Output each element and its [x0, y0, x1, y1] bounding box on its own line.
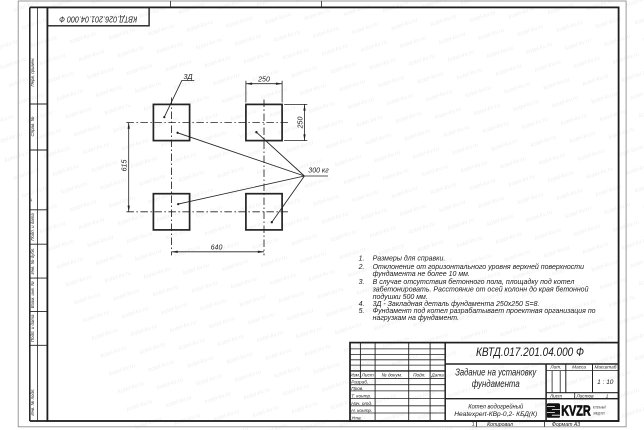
svg-text:№ докум.: № докум.: [382, 373, 403, 378]
svg-text:Котел водогрейный: Котел водогрейный: [468, 402, 523, 410]
svg-text:фундамента не более 10 мм.: фундамента не более 10 мм.: [373, 270, 470, 278]
svg-text:250: 250: [257, 77, 270, 84]
svg-text:Heatexpert-КВр-0,2- КБД(К): Heatexpert-КВр-0,2- КБД(К): [454, 411, 537, 418]
svg-text:Разраб.: Разраб.: [351, 380, 368, 385]
svg-text:Инв. № дубл.: Инв. № дубл.: [30, 247, 35, 274]
svg-text:3.: 3.: [359, 279, 365, 286]
svg-text:Утв.: Утв.: [351, 416, 362, 421]
svg-text:KVZR: KVZR: [561, 403, 591, 420]
svg-text:Подп. и дата: Подп. и дата: [30, 314, 35, 342]
svg-text:ЗАВОД РЭП: ЗАВОД РЭП: [593, 410, 605, 415]
svg-text:Т. контр.: Т. контр.: [351, 394, 371, 399]
svg-text:КВТД.026.201.04.000 Ф: КВТД.026.201.04.000 Ф: [59, 15, 137, 25]
svg-text:4.: 4.: [359, 301, 365, 308]
svg-text:Задание на установку: Задание на установку: [455, 368, 537, 379]
svg-text:Формат А3: Формат А3: [552, 422, 580, 428]
svg-text:2.: 2.: [358, 264, 365, 271]
svg-text:Лист: Лист: [549, 394, 562, 399]
svg-text:забетонировать. Расстояние от: забетонировать. Расстояние от осей колон…: [372, 285, 589, 293]
svg-text:Н. контр.: Н. контр.: [351, 408, 372, 413]
svg-text:1.: 1.: [359, 256, 365, 263]
svg-text:Подп.: Подп.: [413, 373, 425, 378]
svg-text:1 : 10: 1 : 10: [597, 379, 614, 386]
svg-text:В случае отсутствия бетонного: В случае отсутствия бетонного пола, площ…: [373, 278, 575, 286]
svg-text:300 кг: 300 кг: [308, 168, 329, 175]
svg-text:А: А: [29, 198, 32, 203]
svg-text:1: 1: [606, 394, 609, 399]
svg-text:250: 250: [297, 117, 304, 130]
svg-text:Лит.: Лит.: [549, 365, 561, 370]
svg-text:Подп. и дата: Подп. и дата: [30, 213, 35, 241]
svg-text:Размеры для справки.: Размеры для справки.: [373, 255, 446, 263]
svg-text:Перв. примен.: Перв. примен.: [30, 57, 35, 86]
svg-text:Пров.: Пров.: [351, 386, 363, 391]
svg-text:Нач. отд.: Нач. отд.: [351, 401, 372, 406]
svg-text:КОТЕЛЬНЫЙ: КОТЕЛЬНЫЙ: [593, 405, 606, 410]
svg-text:подушки 500 мм.: подушки 500 мм.: [373, 293, 428, 301]
svg-text:нагрузкам на фундамент.: нагрузкам на фундамент.: [373, 314, 459, 322]
svg-text:Изм.: Изм.: [350, 373, 360, 378]
svg-text:1: 1: [472, 422, 475, 428]
svg-text:3Д - Закладная деталь фундамен: 3Д - Закладная деталь фундамента 250х250…: [373, 300, 540, 308]
svg-text:Взам. инв. №: Взам. инв. №: [30, 281, 35, 308]
svg-text:Дата: Дата: [430, 373, 444, 378]
svg-text:КВТД.017.201.04.000 Ф: КВТД.017.201.04.000 Ф: [476, 345, 584, 359]
svg-text:Справ. №: Справ. №: [30, 116, 35, 136]
svg-text:640: 640: [211, 244, 223, 251]
svg-text:Лист: Лист: [361, 373, 374, 378]
svg-text:фундамента: фундамента: [472, 378, 520, 390]
svg-text:Листов: Листов: [575, 394, 594, 399]
svg-text:5.: 5.: [359, 308, 365, 315]
svg-text:Фундамент под котел разрабатыв: Фундамент под котел разрабатывает проект…: [373, 307, 596, 315]
svg-text:Отклонение от горизонтального: Отклонение от горизонтального уровня вер…: [373, 263, 585, 271]
svg-text:Инв. № подл.: Инв. № подл.: [30, 388, 35, 415]
svg-text:Масса: Масса: [572, 365, 586, 370]
svg-text:Масштаб: Масштаб: [594, 365, 616, 370]
svg-text:Копировал: Копировал: [487, 422, 513, 428]
svg-text:615: 615: [122, 160, 129, 172]
svg-text:3Д: 3Д: [183, 72, 192, 81]
